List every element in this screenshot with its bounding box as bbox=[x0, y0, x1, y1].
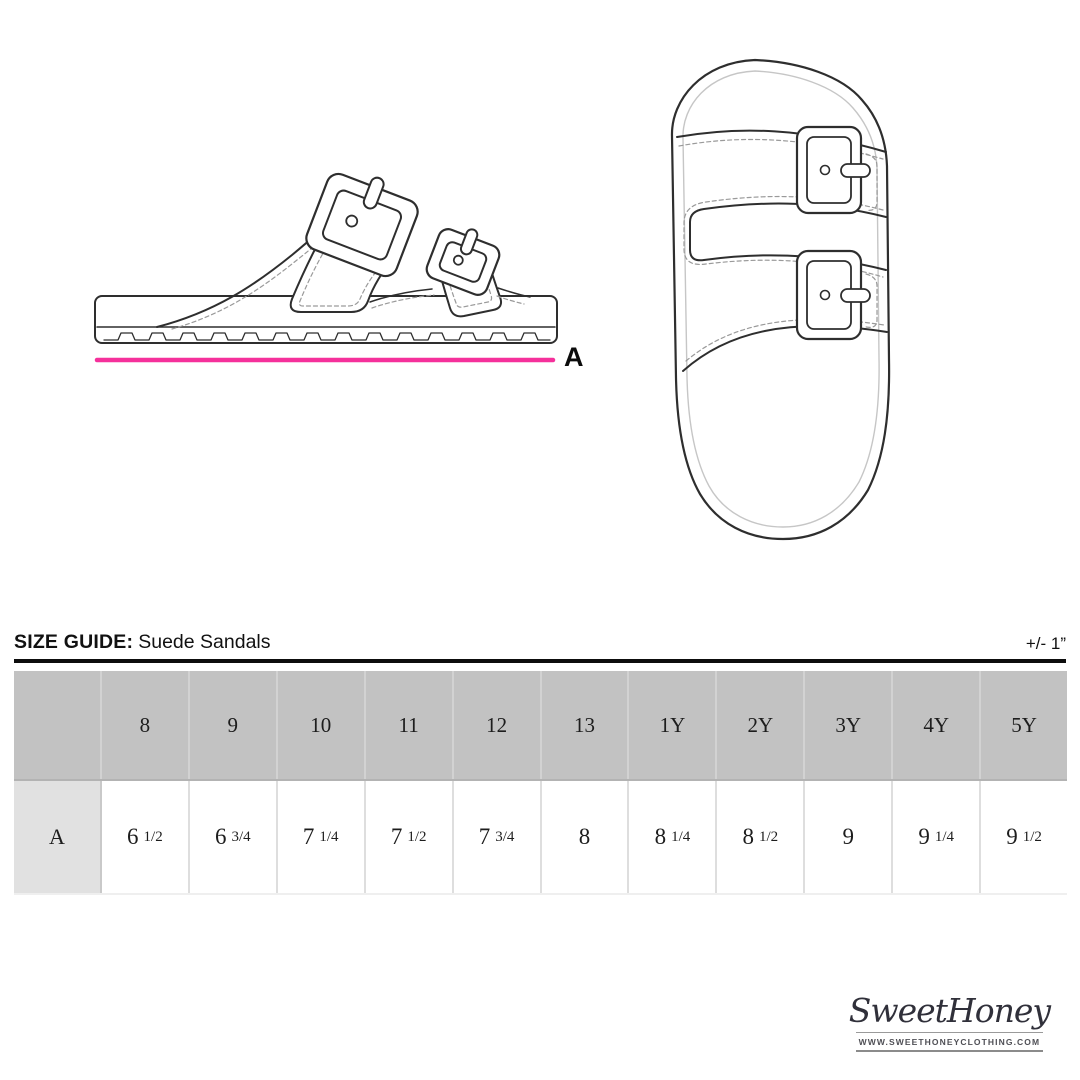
brand-website: WWW.SWEETHONEYCLOTHING.COM bbox=[856, 1032, 1044, 1052]
header-cell-size-3y: 3Y bbox=[805, 671, 893, 779]
value-cell: 71/4 bbox=[278, 781, 366, 893]
value-cell: 63/4 bbox=[190, 781, 278, 893]
header-cell-size-11: 11 bbox=[366, 671, 454, 779]
header-cell-size-10: 10 bbox=[278, 671, 366, 779]
size-guide-title: SIZE GUIDE:Suede Sandals bbox=[14, 631, 271, 654]
header-cell-size-2y: 2Y bbox=[717, 671, 805, 779]
sandal-drawings bbox=[0, 0, 1080, 620]
value-cell: 71/2 bbox=[366, 781, 454, 893]
size-guide-page: A SIZE GUIDE:Suede Sandals +/- 1” 8 9 10… bbox=[0, 0, 1080, 1080]
brand-logo-text: SweetHoney bbox=[849, 993, 1050, 1029]
size-table-data-row: A 61/2 63/4 71/4 71/2 73/4 8 81/4 81/2 9… bbox=[14, 781, 1067, 895]
value-cell: 91/2 bbox=[981, 781, 1067, 893]
value-cell: 61/2 bbox=[102, 781, 190, 893]
header-cell-size-4y: 4Y bbox=[893, 671, 981, 779]
header-cell-size-8: 8 bbox=[102, 671, 190, 779]
value-cell: 9 bbox=[805, 781, 893, 893]
size-table-header-row: 8 9 10 11 12 13 1Y 2Y 3Y 4Y 5Y bbox=[14, 671, 1067, 781]
size-guide-title-label: SIZE GUIDE: bbox=[14, 631, 133, 653]
header-cell-size-5y: 5Y bbox=[981, 671, 1067, 779]
value-cell: 73/4 bbox=[454, 781, 542, 893]
sandal-top-view bbox=[672, 60, 889, 539]
row-label-cell: A bbox=[14, 781, 102, 893]
value-cell: 81/2 bbox=[717, 781, 805, 893]
header-cell-size-1y: 1Y bbox=[629, 671, 717, 779]
divider-rule bbox=[14, 659, 1066, 663]
size-guide-product-name: Suede Sandals bbox=[138, 631, 270, 653]
value-cell: 81/4 bbox=[629, 781, 717, 893]
value-cell: 91/4 bbox=[893, 781, 981, 893]
size-table: 8 9 10 11 12 13 1Y 2Y 3Y 4Y 5Y A 61/2 63… bbox=[14, 671, 1067, 895]
header-cell-size-9: 9 bbox=[190, 671, 278, 779]
size-guide-header: SIZE GUIDE:Suede Sandals +/- 1” bbox=[14, 631, 1066, 654]
header-cell-size-12: 12 bbox=[454, 671, 542, 779]
value-cell: 8 bbox=[542, 781, 630, 893]
measurement-label-a: A bbox=[564, 342, 584, 373]
sandal-side-view bbox=[95, 161, 557, 360]
brand-logo: SweetHoney WWW.SWEETHONEYCLOTHING.COM bbox=[849, 993, 1050, 1052]
header-corner-cell bbox=[14, 671, 102, 779]
tolerance-note: +/- 1” bbox=[1026, 634, 1066, 654]
header-cell-size-13: 13 bbox=[542, 671, 630, 779]
